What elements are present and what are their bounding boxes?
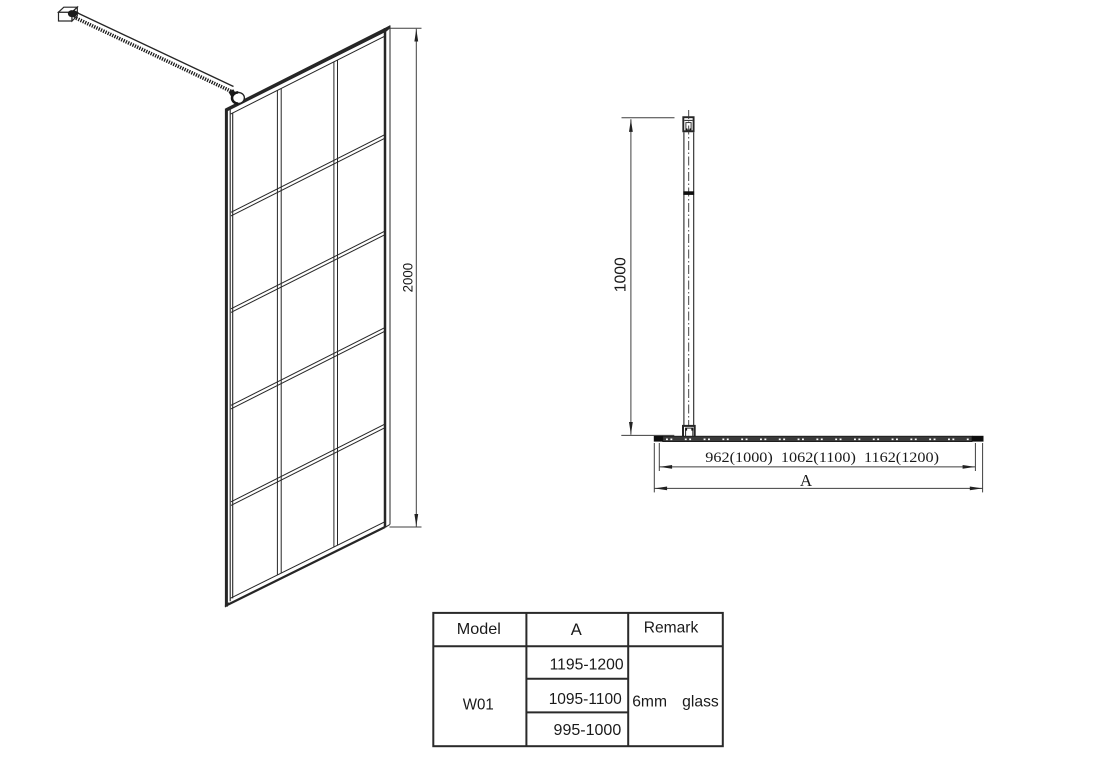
svg-text:2000: 2000 bbox=[400, 263, 416, 293]
svg-text:995-1000: 995-1000 bbox=[554, 722, 622, 739]
svg-text:Remark: Remark bbox=[644, 620, 700, 637]
svg-text:1095-1100: 1095-1100 bbox=[549, 691, 622, 708]
svg-text:962(1000) 1062(1100) 1162(12: 962(1000) 1062(1100) 1162(1200) bbox=[705, 450, 939, 466]
svg-text:A: A bbox=[571, 621, 582, 639]
svg-text:6mm: 6mm bbox=[632, 693, 667, 710]
svg-text:glass: glass bbox=[682, 693, 719, 710]
svg-text:Model: Model bbox=[457, 621, 501, 638]
svg-text:A: A bbox=[800, 471, 813, 490]
svg-text:W01: W01 bbox=[463, 697, 494, 714]
svg-text:1000: 1000 bbox=[613, 257, 630, 292]
svg-text:1195-1200: 1195-1200 bbox=[550, 657, 624, 674]
